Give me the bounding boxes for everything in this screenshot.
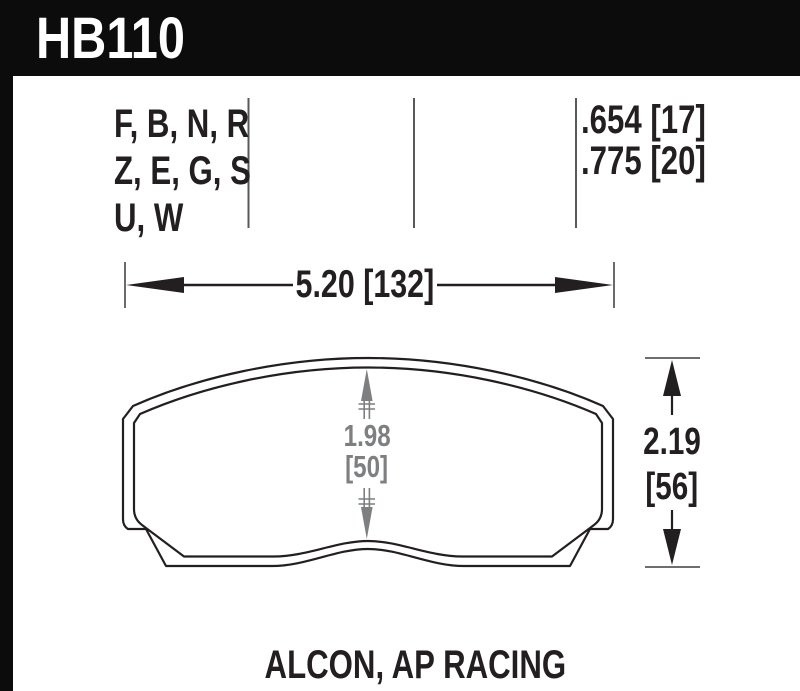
caliper-application-text: ALCON, AP RACING — [264, 644, 566, 686]
center-arrowhead-up — [361, 369, 373, 401]
center-dimension-mm: [50] — [345, 451, 388, 482]
width-arrowhead-left — [126, 277, 184, 293]
height-dimension-label: 2.19 [56] — [611, 420, 733, 510]
spec-table-dividers — [249, 98, 577, 228]
width-dimension-text: 5.20 [132] — [296, 264, 435, 306]
width-arrowhead-right — [555, 277, 613, 293]
center-arrowhead-down — [361, 507, 373, 539]
height-arrowhead-down — [663, 529, 681, 565]
pad-thickness: .654 [17] .775 [20] — [581, 100, 741, 182]
compound-codes-line-2: Z, E, G, S — [114, 148, 251, 195]
center-dimension-inches: 1.98 — [343, 420, 390, 451]
pad-thickness-line-1: .654 [17] — [581, 100, 706, 141]
height-dimension-mm: [56] — [646, 465, 699, 510]
compound-codes-line-3: U, W — [114, 195, 183, 242]
compound-codes-line-1: F, B, N, R — [114, 101, 249, 148]
compound-codes: F, B, N, R Z, E, G, S U, W — [114, 101, 290, 242]
pad-thickness-line-2: .775 [20] — [581, 141, 706, 182]
brake-pad-spec-sheet: HB110 — [0, 0, 800, 691]
height-dimension-inches: 2.19 — [643, 420, 701, 465]
center-dimension-label: 1.98 [50] — [287, 420, 447, 482]
caliper-application-label: ALCON, AP RACING — [215, 644, 615, 686]
height-arrowhead-up — [663, 360, 681, 396]
width-dimension-label: 5.20 [132] — [225, 264, 505, 306]
